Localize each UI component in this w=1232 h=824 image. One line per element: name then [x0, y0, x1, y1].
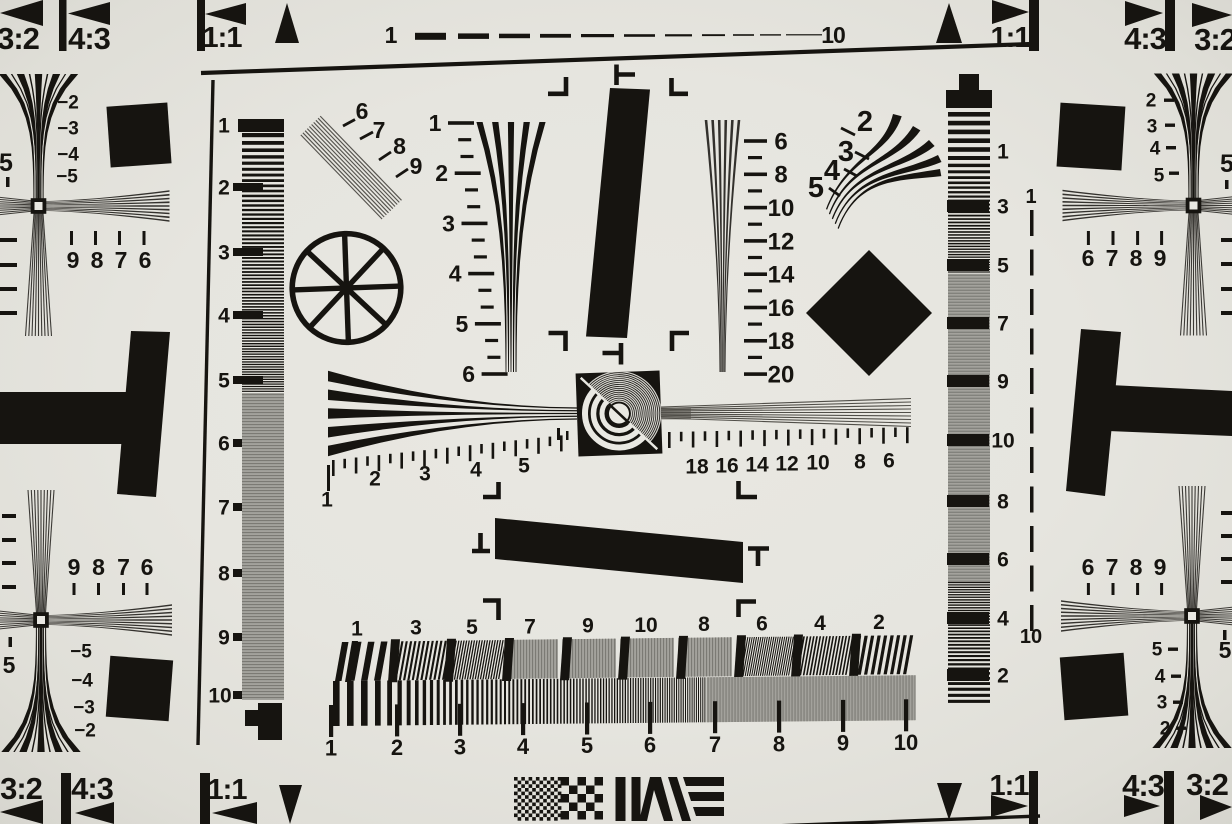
- svg-text:3: 3: [454, 735, 466, 760]
- svg-text:2: 2: [369, 467, 381, 490]
- svg-text:10: 10: [894, 730, 918, 755]
- svg-text:6: 6: [756, 613, 768, 636]
- svg-text:3: 3: [442, 211, 455, 237]
- svg-text:18: 18: [685, 455, 709, 478]
- svg-text:5: 5: [1220, 150, 1232, 178]
- svg-text:1: 1: [997, 140, 1009, 163]
- svg-text:2: 2: [1160, 719, 1171, 740]
- svg-text:8: 8: [92, 554, 105, 580]
- svg-text:5: 5: [808, 172, 824, 204]
- svg-text:8: 8: [91, 247, 104, 273]
- svg-text:−5: −5: [56, 167, 78, 188]
- svg-text:9: 9: [837, 731, 849, 756]
- svg-text:2: 2: [857, 106, 873, 138]
- svg-text:5: 5: [518, 454, 530, 477]
- svg-text:18: 18: [768, 328, 795, 355]
- svg-text:5: 5: [1154, 166, 1165, 187]
- svg-text:10: 10: [806, 452, 829, 475]
- svg-text:3: 3: [419, 462, 431, 485]
- svg-text:1:1: 1:1: [208, 774, 248, 806]
- svg-text:4:3: 4:3: [71, 771, 114, 806]
- svg-text:7: 7: [1106, 245, 1119, 271]
- svg-text:5: 5: [466, 616, 478, 639]
- svg-text:3:2: 3:2: [0, 771, 42, 806]
- svg-text:8: 8: [774, 162, 787, 189]
- svg-text:2: 2: [873, 611, 885, 634]
- svg-text:10: 10: [991, 429, 1014, 452]
- svg-text:7: 7: [1106, 554, 1119, 580]
- svg-text:7: 7: [709, 732, 721, 757]
- svg-text:6: 6: [462, 361, 475, 387]
- svg-text:3: 3: [218, 241, 230, 264]
- svg-text:−3: −3: [57, 119, 79, 140]
- svg-text:9: 9: [68, 554, 81, 580]
- svg-text:4: 4: [1155, 667, 1166, 688]
- svg-text:7: 7: [117, 554, 130, 580]
- svg-text:4: 4: [814, 612, 826, 635]
- svg-text:6: 6: [356, 98, 369, 124]
- svg-text:14: 14: [745, 454, 769, 477]
- svg-text:−3: −3: [73, 698, 95, 719]
- svg-text:8: 8: [1130, 554, 1143, 580]
- svg-text:5: 5: [218, 369, 230, 392]
- svg-text:4: 4: [1150, 139, 1161, 160]
- svg-text:4: 4: [449, 261, 462, 287]
- svg-text:−2: −2: [57, 93, 79, 114]
- svg-text:8: 8: [773, 731, 785, 756]
- svg-text:5: 5: [0, 149, 13, 177]
- svg-text:6: 6: [141, 554, 154, 580]
- svg-text:−4: −4: [57, 145, 79, 166]
- svg-text:8: 8: [698, 613, 710, 636]
- svg-text:14: 14: [768, 262, 795, 289]
- svg-text:5: 5: [997, 254, 1009, 277]
- svg-text:6: 6: [218, 432, 230, 455]
- svg-text:20: 20: [768, 362, 795, 389]
- svg-text:−5: −5: [70, 642, 92, 663]
- svg-text:4:3: 4:3: [1124, 21, 1167, 56]
- svg-text:6: 6: [644, 733, 656, 758]
- svg-text:1: 1: [385, 22, 398, 48]
- svg-text:16: 16: [715, 455, 738, 478]
- svg-text:2: 2: [435, 160, 448, 186]
- svg-text:5: 5: [581, 733, 593, 758]
- svg-text:9: 9: [410, 153, 423, 179]
- svg-text:4:3: 4:3: [68, 21, 111, 56]
- svg-text:6: 6: [774, 128, 787, 155]
- svg-text:3:2: 3:2: [1186, 767, 1228, 802]
- svg-text:−4: −4: [71, 671, 93, 692]
- svg-text:8: 8: [218, 562, 230, 585]
- svg-text:3: 3: [410, 617, 422, 640]
- svg-text:6: 6: [1082, 245, 1095, 271]
- svg-text:8: 8: [393, 133, 406, 159]
- svg-text:9: 9: [67, 247, 80, 273]
- svg-text:7: 7: [997, 312, 1009, 335]
- svg-text:9: 9: [997, 370, 1009, 393]
- svg-text:8: 8: [997, 490, 1009, 513]
- svg-text:3: 3: [1147, 117, 1158, 138]
- svg-text:2: 2: [218, 176, 230, 199]
- svg-text:12: 12: [775, 453, 798, 476]
- svg-text:4: 4: [218, 304, 230, 327]
- svg-text:8: 8: [854, 451, 866, 474]
- svg-text:−2: −2: [74, 721, 96, 742]
- svg-text:10: 10: [1020, 626, 1042, 648]
- svg-text:1: 1: [351, 617, 363, 640]
- svg-text:1:1: 1:1: [203, 22, 243, 54]
- svg-text:10: 10: [634, 614, 657, 637]
- svg-text:10: 10: [821, 22, 845, 48]
- svg-text:7: 7: [115, 247, 128, 273]
- svg-text:2: 2: [391, 735, 403, 760]
- svg-text:7: 7: [373, 117, 386, 143]
- svg-text:5: 5: [456, 311, 469, 337]
- svg-text:5: 5: [1219, 637, 1232, 663]
- svg-text:5: 5: [1152, 640, 1163, 661]
- svg-text:1:1: 1:1: [991, 22, 1031, 54]
- svg-text:1: 1: [325, 736, 337, 761]
- svg-text:3:2: 3:2: [0, 21, 39, 56]
- svg-text:16: 16: [768, 295, 795, 322]
- svg-text:6: 6: [883, 450, 895, 473]
- svg-text:4: 4: [824, 155, 840, 187]
- svg-text:6: 6: [997, 548, 1009, 571]
- svg-text:6: 6: [1082, 554, 1095, 580]
- svg-text:7: 7: [218, 496, 230, 519]
- svg-text:3: 3: [997, 195, 1009, 218]
- svg-text:9: 9: [218, 626, 230, 649]
- svg-text:1: 1: [321, 488, 333, 511]
- svg-text:8: 8: [1130, 245, 1143, 271]
- svg-text:4: 4: [517, 734, 530, 759]
- svg-text:1: 1: [1025, 186, 1036, 208]
- svg-text:2: 2: [997, 664, 1009, 687]
- svg-text:3: 3: [838, 136, 854, 168]
- svg-text:1: 1: [218, 114, 230, 137]
- svg-text:3:2: 3:2: [1194, 22, 1232, 57]
- svg-text:6: 6: [139, 247, 152, 273]
- svg-text:10: 10: [208, 684, 231, 707]
- svg-text:4: 4: [997, 607, 1009, 630]
- svg-text:9: 9: [1154, 245, 1167, 271]
- svg-text:10: 10: [768, 195, 795, 222]
- svg-text:5: 5: [3, 652, 16, 678]
- svg-text:9: 9: [582, 615, 594, 638]
- svg-text:7: 7: [524, 615, 536, 638]
- svg-text:2: 2: [1146, 91, 1157, 112]
- svg-text:12: 12: [768, 228, 795, 255]
- svg-text:4: 4: [470, 458, 482, 481]
- svg-text:1: 1: [429, 110, 442, 136]
- svg-text:9: 9: [1154, 554, 1167, 580]
- svg-text:3: 3: [1157, 693, 1168, 714]
